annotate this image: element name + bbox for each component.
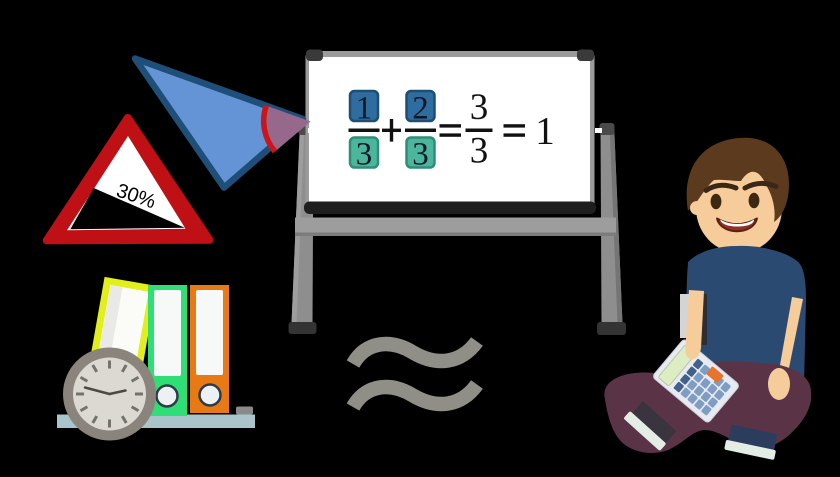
svg-text:3: 3 <box>470 131 489 172</box>
svg-text:2: 2 <box>412 91 429 127</box>
svg-text:1: 1 <box>535 110 555 153</box>
svg-text:1: 1 <box>356 91 373 127</box>
svg-text:3: 3 <box>412 137 429 173</box>
svg-text:3: 3 <box>470 87 489 128</box>
svg-text:3: 3 <box>356 137 373 173</box>
